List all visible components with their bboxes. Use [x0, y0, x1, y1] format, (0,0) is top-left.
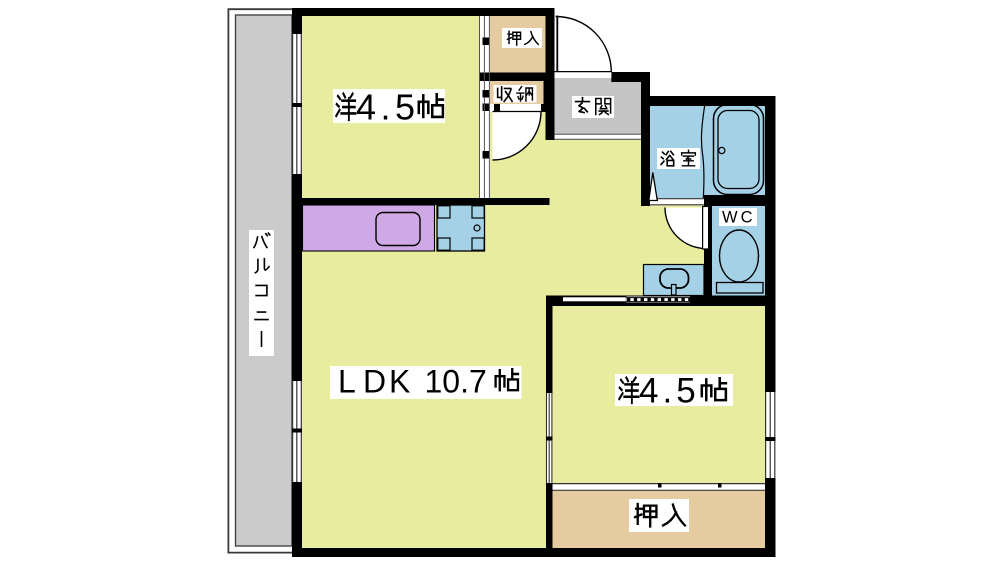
svg-text:D: D — [363, 364, 386, 400]
svg-text:10.7: 10.7 — [425, 364, 487, 400]
svg-text:4.5: 4.5 — [356, 87, 420, 128]
svg-text:4.5: 4.5 — [639, 372, 700, 411]
svg-text:K: K — [389, 364, 410, 400]
svg-text:L: L — [338, 364, 356, 400]
svg-text:WC: WC — [722, 209, 756, 227]
